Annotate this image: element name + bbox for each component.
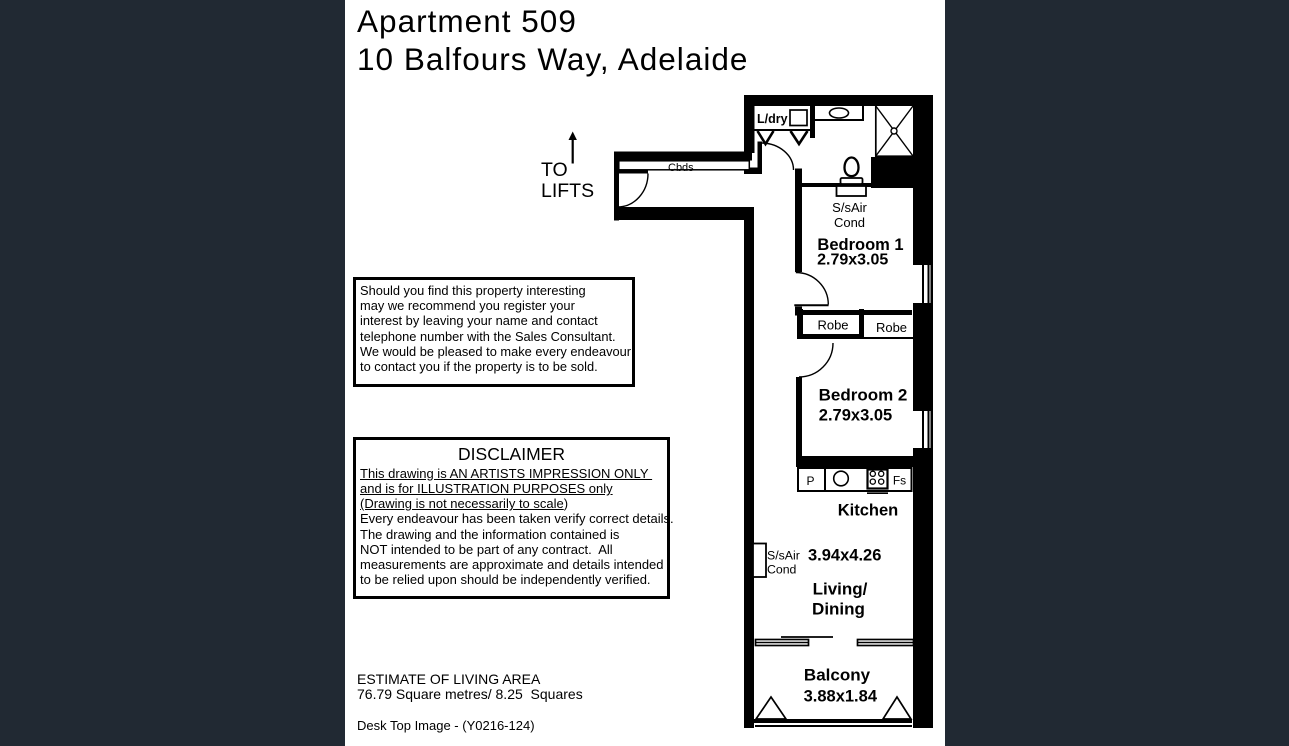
svg-text:Cond: Cond [834, 215, 865, 230]
svg-text:3.88x1.84: 3.88x1.84 [804, 688, 878, 706]
svg-text:Balcony: Balcony [804, 666, 871, 685]
svg-text:Dining: Dining [812, 600, 865, 619]
svg-text:3.94x4.26: 3.94x4.26 [808, 547, 881, 565]
svg-text:L/dry: L/dry [757, 112, 788, 126]
svg-text:Living/: Living/ [813, 580, 868, 599]
svg-text:Robe: Robe [817, 318, 848, 333]
svg-text:Kitchen: Kitchen [838, 502, 899, 520]
svg-text:Cond: Cond [767, 563, 797, 577]
svg-text:Robe: Robe [876, 320, 907, 335]
svg-text:S/sAir: S/sAir [767, 549, 800, 563]
svg-text:S/sAir: S/sAir [832, 200, 867, 215]
svg-text:2.79x3.05: 2.79x3.05 [817, 252, 888, 269]
svg-text:Bedroom 2: Bedroom 2 [819, 386, 908, 405]
svg-text:P: P [806, 474, 814, 488]
svg-text:Fs: Fs [893, 474, 906, 488]
svg-text:Cbds: Cbds [668, 162, 694, 174]
svg-text:2.79x3.05: 2.79x3.05 [819, 407, 892, 425]
